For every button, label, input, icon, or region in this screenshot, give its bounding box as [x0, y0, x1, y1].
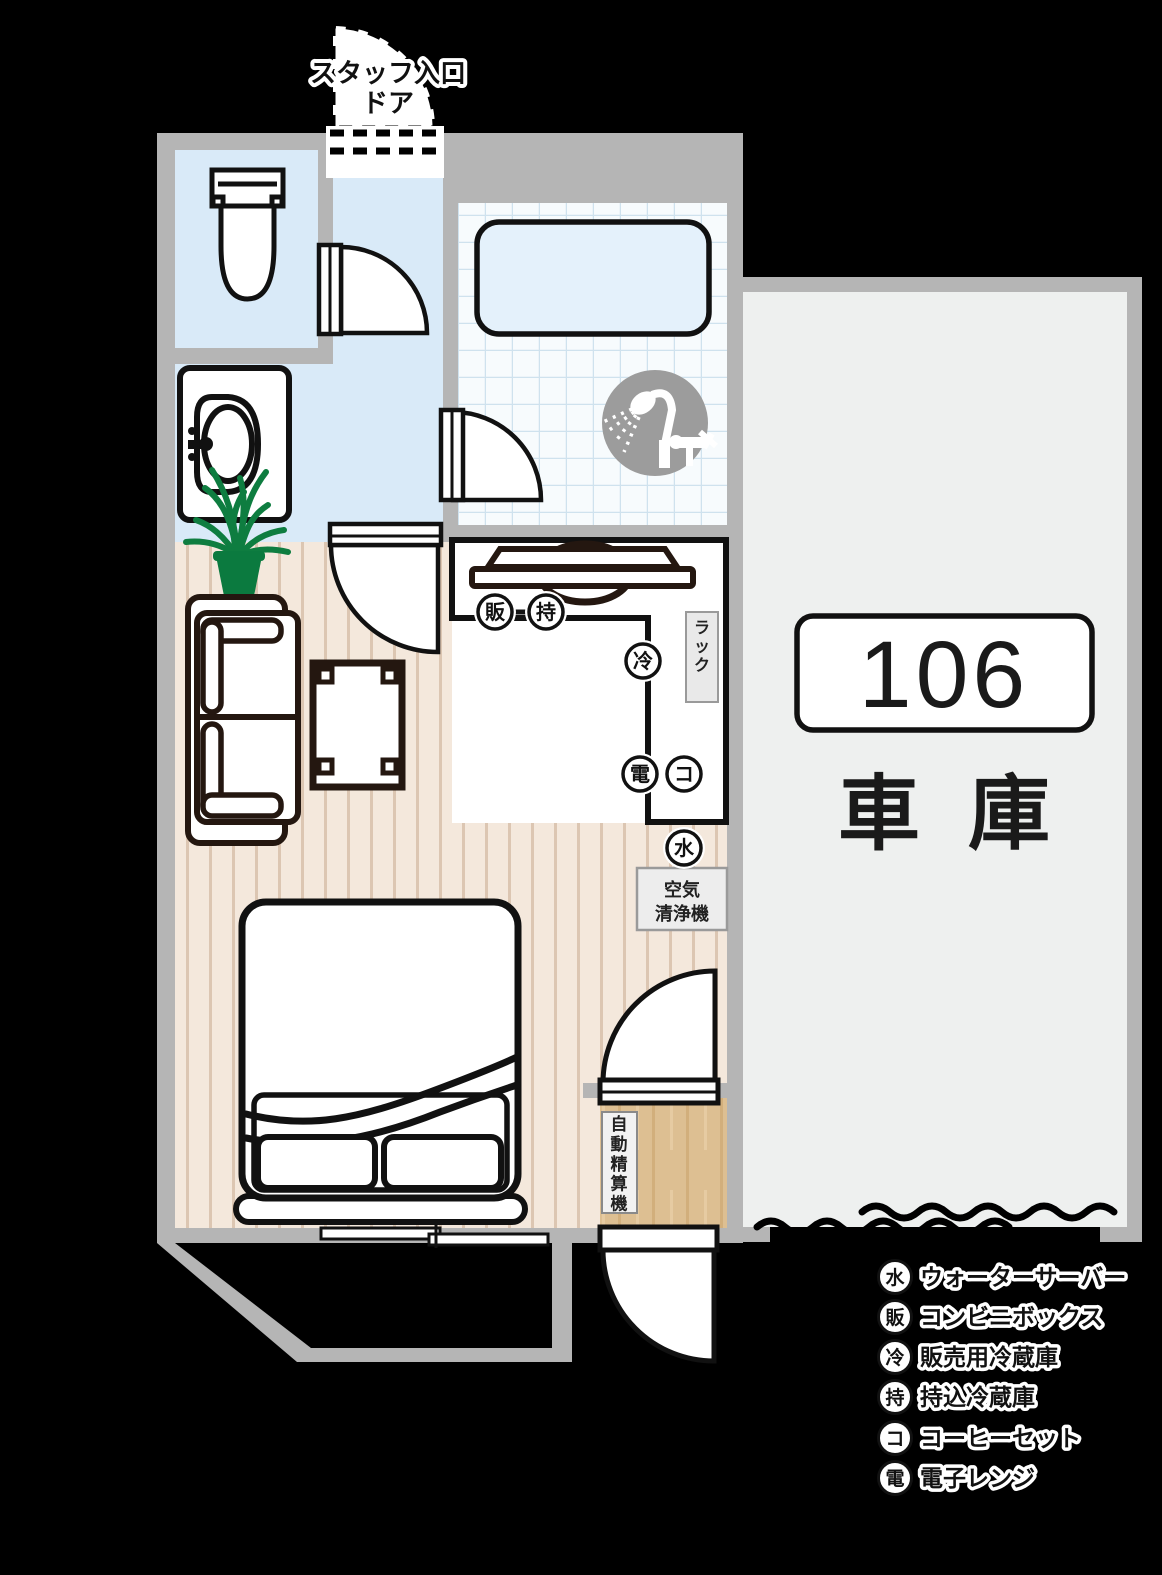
wall-garage-right: [1127, 277, 1142, 1242]
wall-below-toilet: [157, 348, 333, 364]
air-purifier-label-line1: 空気: [664, 879, 700, 900]
legend-row-sale-fridge: 冷 販売用冷蔵庫: [879, 1341, 1059, 1374]
legend-row-microwave: 電 電子レンジ: [879, 1462, 1036, 1495]
marker-vending: 販: [474, 591, 516, 633]
marker-sale-fridge-code: 冷: [633, 649, 653, 673]
legend-label: 電子レンジ: [920, 1465, 1035, 1491]
toilet-icon: [212, 170, 283, 299]
legend-code: 持: [885, 1386, 904, 1409]
marker-microwave-code: 電: [630, 763, 650, 786]
legend-code: コ: [885, 1429, 904, 1450]
wall-garage-bottom-right: [1100, 1227, 1142, 1242]
marker-sale-fridge: 冷: [622, 640, 664, 682]
wall-top: [157, 133, 743, 150]
legend-label: 販売用冷蔵庫: [920, 1344, 1058, 1370]
floor-plan-room-106: スタッフ入口 ドア: [0, 0, 1162, 1575]
garage-label: 車庫: [838, 769, 1098, 860]
plant-pot-rim: [213, 551, 265, 561]
marker-coffee: コ: [663, 753, 705, 795]
legend-code: 冷: [885, 1346, 904, 1369]
coffee-table: [313, 663, 402, 787]
staff-entrance-label-line1: スタッフ入口: [310, 58, 466, 88]
wall-bathroom-left-upper: [443, 203, 458, 410]
legend-label: 持込冷蔵庫: [920, 1384, 1035, 1410]
staff-entrance-label-line2: ドア: [362, 88, 414, 118]
table-leg: [383, 669, 396, 682]
legend-code: 水: [885, 1267, 905, 1289]
marker-vending-code: 販: [485, 601, 506, 624]
sofa-cushion: [203, 795, 281, 816]
garage-floor: [743, 292, 1127, 1227]
wall-garage-top: [741, 277, 1142, 292]
wall-left: [157, 133, 175, 1243]
legend-row-bring-in-fridge: 持 持込冷蔵庫: [879, 1381, 1036, 1414]
wall-above-bathroom: [443, 150, 743, 203]
legend-label: コーヒーセット: [920, 1425, 1081, 1451]
sofa-cushion: [203, 622, 221, 712]
marker-bring-in-code: 持: [536, 600, 556, 624]
pillow: [384, 1137, 501, 1188]
sink-handle-cold: [188, 453, 196, 461]
marker-water-server: 水: [663, 827, 705, 869]
exterior-door-leaf: [600, 1227, 717, 1250]
marker-bring-in-fridge: 持: [525, 591, 567, 633]
shower-hose-end: [659, 440, 670, 468]
legend-label: コンビニボックス: [920, 1304, 1103, 1330]
pillow: [258, 1137, 375, 1188]
sink-faucet: [199, 437, 213, 451]
payment-machine-label: 自動精算機: [610, 1114, 628, 1214]
marker-microwave: 電: [619, 753, 661, 795]
bed: [236, 902, 525, 1222]
table-leg: [319, 669, 332, 682]
legend-code: 電: [885, 1468, 904, 1490]
table-leg: [383, 760, 396, 773]
marker-water-code: 水: [674, 837, 695, 860]
legend-label: ウォーターサーバー: [920, 1264, 1126, 1290]
marker-coffee-code: コ: [674, 764, 694, 786]
table-leg: [319, 760, 332, 773]
sink-handle-hot: [188, 427, 196, 435]
floor-plan-canvas: スタッフ入口 ドア: [0, 0, 1162, 1575]
legend-code: 販: [885, 1307, 905, 1329]
bathtub: [477, 222, 709, 334]
toilet-bowl: [221, 206, 274, 299]
sink-icon: [188, 397, 258, 492]
room-number: 106: [859, 622, 1030, 728]
air-purifier-label-line2: 清浄機: [655, 903, 709, 924]
rack-label: ラック: [694, 620, 710, 674]
plant-pot: [216, 556, 262, 596]
sofa: [188, 597, 298, 843]
